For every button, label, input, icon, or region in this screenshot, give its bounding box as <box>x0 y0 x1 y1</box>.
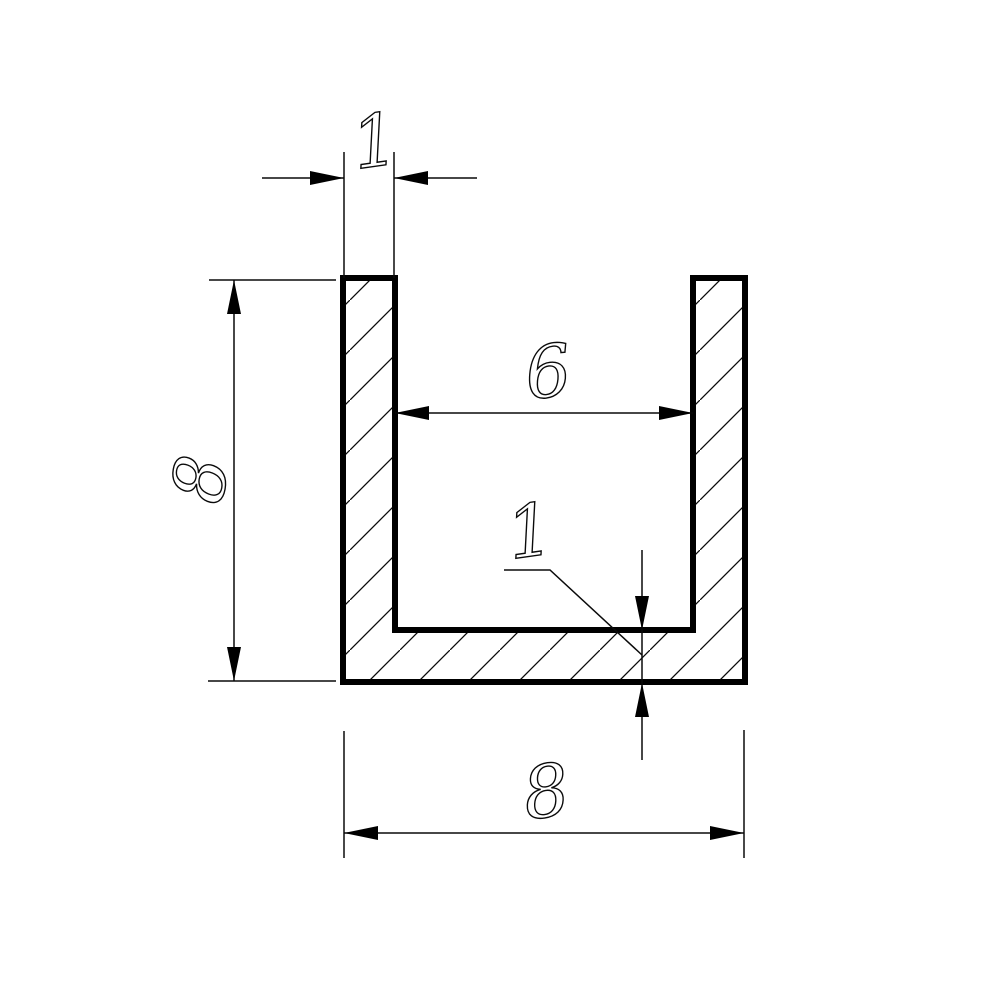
dim-label-web-thickness: 1 <box>502 486 559 576</box>
arrowhead <box>659 406 693 420</box>
arrowhead <box>310 171 344 185</box>
dim-flange-thickness: 1 <box>262 96 477 278</box>
arrowhead <box>227 280 241 314</box>
arrowhead <box>395 406 429 420</box>
dim-outer-width: 8 <box>344 730 744 858</box>
dim-inner-width: 6 <box>395 328 693 420</box>
dim-label-height: 8 <box>155 449 246 509</box>
arrowhead <box>344 826 378 840</box>
dim-web-thickness: 1 <box>502 486 649 760</box>
dim-label-inner-width: 6 <box>521 328 575 416</box>
arrowhead <box>635 596 649 630</box>
dim-label-flange-thickness: 1 <box>347 96 404 186</box>
dim-label-outer-width: 8 <box>517 747 574 837</box>
technical-drawing: 1 8 6 1 <box>0 0 1000 1000</box>
dim-height: 8 <box>155 280 336 681</box>
arrowhead <box>635 683 649 717</box>
arrowhead <box>227 647 241 681</box>
drawing-canvas: 1 8 6 1 <box>0 0 1000 1000</box>
arrowhead <box>710 826 744 840</box>
